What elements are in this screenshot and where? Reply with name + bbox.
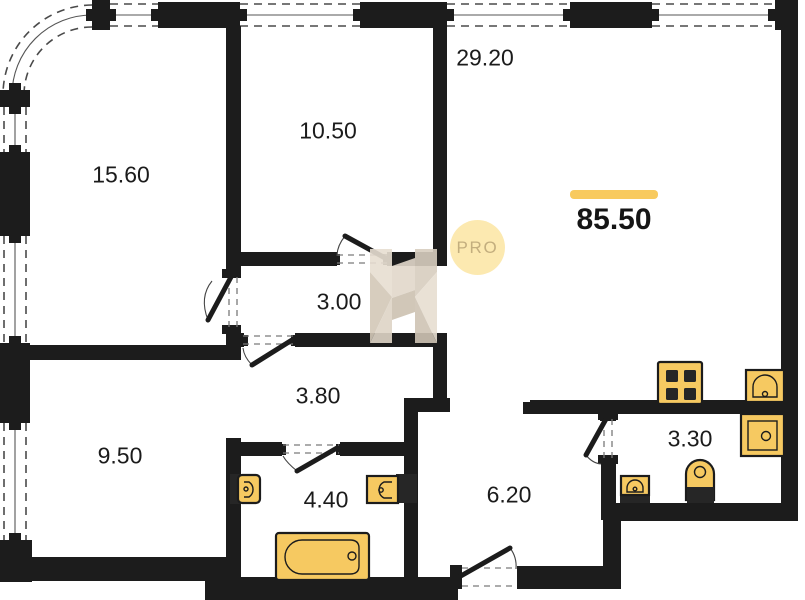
floor-plan: 15.60 10.50 29.20 3.00 3.80 9.50 4.40 6.… (0, 0, 805, 600)
window (240, 4, 360, 26)
bathroom-sink-symbol (367, 474, 417, 503)
total-area-underline (570, 190, 658, 199)
door-swing (243, 336, 295, 365)
window (110, 4, 158, 26)
window (4, 236, 26, 343)
room-area-label: 3.00 (317, 289, 362, 316)
window (447, 4, 570, 26)
window (652, 4, 775, 26)
window (4, 423, 26, 540)
room-area-label: 29.20 (456, 45, 514, 72)
bathtub-symbol (276, 533, 369, 580)
room-area-label: 9.50 (98, 443, 143, 470)
total-area-value: 85.50 (568, 203, 660, 237)
floor-plan-drawing (0, 0, 805, 600)
curved-corner-window (3, 5, 92, 95)
door-swing (283, 445, 339, 471)
washing-machine-symbol (741, 414, 784, 456)
door-swing (204, 277, 237, 327)
toilet-symbol (686, 460, 714, 503)
entrance-door-swing (459, 548, 516, 586)
room-area-label: 3.80 (296, 383, 341, 410)
room-area-label: 4.40 (304, 487, 349, 514)
pro-watermark-badge: PRO (450, 220, 505, 275)
pro-watermark-text: PRO (457, 238, 499, 258)
room-area-label: 3.30 (668, 426, 713, 453)
bathroom-toilet-symbol (230, 474, 260, 504)
room-area-label: 15.60 (92, 162, 150, 189)
kitchen-sink-symbol (746, 370, 784, 402)
stove-symbol (658, 362, 702, 404)
room-area-label: 6.20 (487, 482, 532, 509)
room-area-label: 10.50 (299, 118, 357, 145)
builder-logo-watermark (370, 249, 437, 343)
hand-sink-symbol (620, 476, 650, 503)
